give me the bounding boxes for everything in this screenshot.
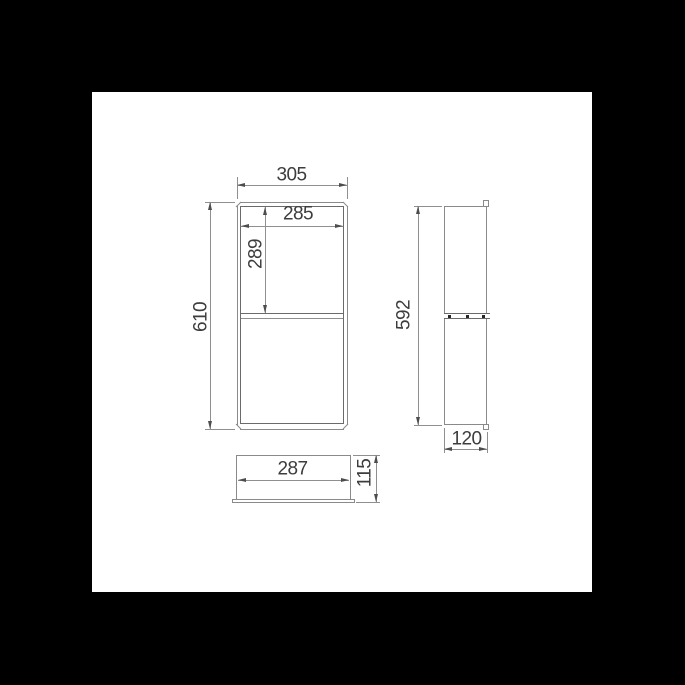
dim-610-arrow-bottom (208, 421, 212, 429)
drawing-sheet: 305 285 289 610 (92, 92, 592, 592)
front-chamfer-bottom-left (236, 424, 242, 430)
dim-305-arrow-left (237, 183, 245, 187)
dim-305-ext-left (237, 177, 238, 199)
dim-610-arrow-top (208, 202, 212, 210)
side-shelf-fastener-1 (448, 315, 451, 318)
dim-285-line (241, 226, 344, 227)
side-shelf-fastener-2 (466, 315, 469, 318)
front-chamfer-bottom-right (342, 424, 348, 430)
drawing-stage: 305 285 289 610 (0, 0, 685, 685)
front-outer-bottom-edge (240, 429, 344, 430)
dim-120-arrow-left (444, 447, 452, 451)
dim-115-ext-bottom (356, 502, 380, 503)
dim-285-arrow-right (335, 224, 343, 228)
side-front-lip-bottom (483, 424, 489, 430)
dim-287-arrow-left (238, 478, 246, 482)
dim-610-ext-bottom (205, 429, 235, 430)
dim-285-arrow-left (241, 224, 249, 228)
dim-592-line (418, 206, 419, 425)
side-shelf-fastener-3 (482, 315, 485, 318)
front-outer-left-edge (237, 206, 238, 425)
dim-592-arrow-bottom (416, 417, 420, 425)
dim-115-label: 115 (355, 458, 374, 487)
dim-592-label: 592 (395, 300, 414, 330)
dim-287-label: 287 (278, 460, 308, 479)
dim-115-arrow-bottom (374, 494, 378, 502)
dim-289-arrow-top (263, 207, 267, 215)
front-shelf (241, 313, 344, 319)
dim-305-arrow-right (339, 183, 347, 187)
dim-120-ext-right (487, 432, 488, 453)
bottom-flange (232, 499, 355, 503)
dim-285-label: 285 (283, 205, 313, 224)
dim-287-arrow-right (341, 478, 349, 482)
dim-120-label: 120 (452, 430, 482, 449)
side-front-lip-top (483, 200, 489, 207)
dim-289-arrow-bottom (263, 305, 267, 313)
dim-289-label: 289 (247, 239, 266, 269)
dim-305-label: 305 (277, 166, 307, 185)
dim-287-line (238, 480, 349, 481)
dim-305-ext-right (347, 177, 348, 199)
dim-592-ext-bottom (414, 425, 443, 426)
dim-610-label: 610 (191, 302, 210, 332)
dim-592-arrow-top (416, 206, 420, 214)
front-outer-right-edge (347, 206, 348, 425)
